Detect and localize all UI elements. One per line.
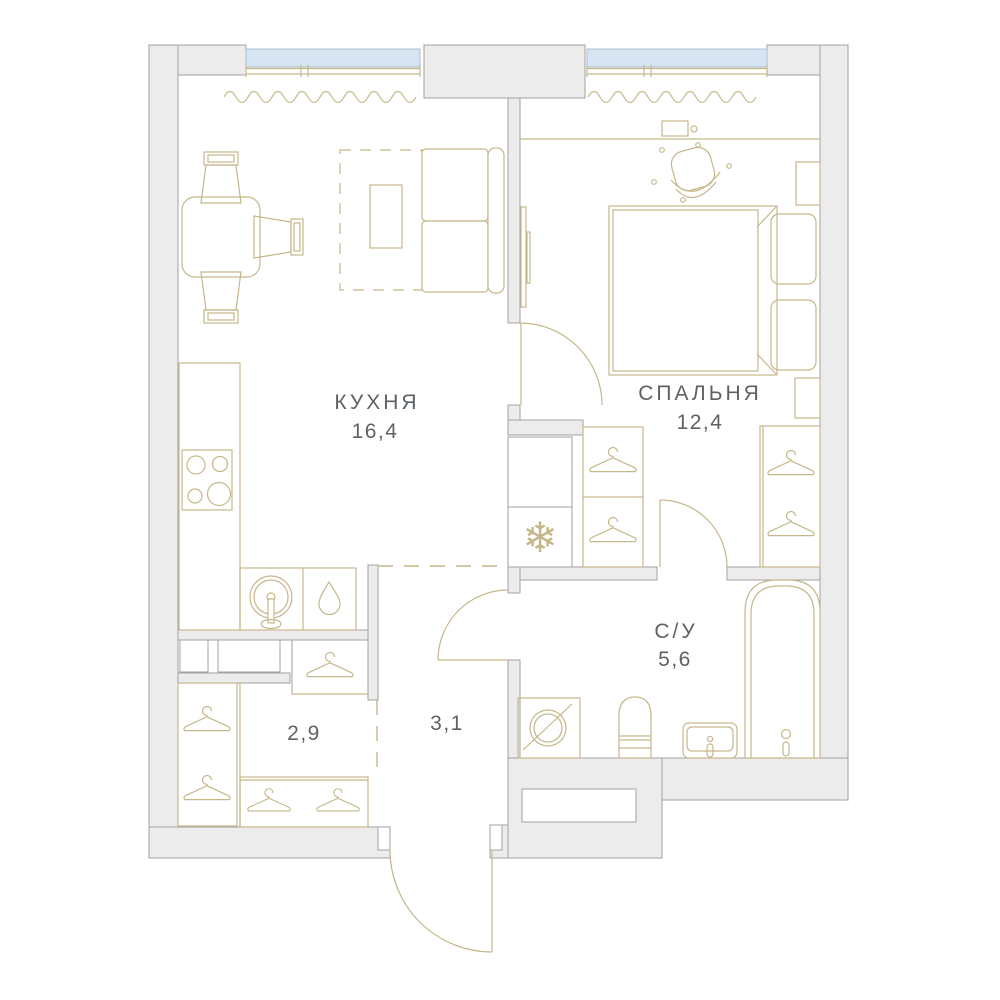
stove (182, 450, 232, 510)
dining-table-set (182, 152, 303, 323)
pillow (771, 300, 816, 370)
room-area-wardrobe: 2,9 (287, 722, 321, 745)
wall-bottom-left (149, 827, 390, 858)
window-kitchen (224, 49, 420, 103)
wall-stub-fridge-bottom (508, 567, 520, 593)
chair-right (254, 216, 303, 258)
vent-shaft (522, 789, 636, 822)
sofa-zone (340, 148, 504, 293)
window-bedroom (587, 49, 767, 103)
floor-plan: ❄ (0, 0, 1000, 1000)
drop-icon (319, 582, 340, 615)
door-swing-arc (660, 500, 727, 567)
wardrobe-left (178, 683, 240, 826)
door-kitchen-bedroom (520, 323, 602, 405)
room-area-bathroom: 5,6 (658, 648, 692, 671)
hanger-icon (317, 789, 360, 811)
hanger-icon (768, 512, 814, 536)
sofa-back (488, 148, 504, 293)
wall-kitchen-bottom (178, 630, 368, 640)
room-label-kitchen: КУХНЯ (334, 391, 419, 414)
room-area-bedroom: 12,4 (677, 411, 724, 434)
sofa-cushion (422, 149, 488, 221)
toilet (619, 697, 651, 758)
washing-machine (518, 698, 580, 758)
blanket-folds (757, 207, 776, 374)
room-area-kitchen: 16,4 (352, 420, 399, 443)
kitchen-sink-counter (240, 568, 356, 630)
pillow (771, 214, 816, 284)
wall-right (820, 45, 848, 800)
coffee-table (370, 185, 402, 248)
mouse-icon (691, 126, 697, 132)
bed-blanket (613, 210, 758, 371)
floor-plan-page: ❄ (0, 0, 1000, 1000)
chair-bottom (201, 272, 241, 323)
door-swing-arc (390, 850, 492, 952)
fridge-cabinet: ❄ (508, 437, 572, 567)
hanger-icon (248, 789, 291, 811)
bed-frame (609, 206, 777, 375)
wardrobe-bedroom-right (760, 426, 820, 567)
kitchen-furniture (179, 148, 504, 630)
hanger-icon (184, 776, 230, 800)
bed (609, 206, 816, 375)
entrance-door (390, 850, 492, 952)
window-glass (587, 49, 767, 67)
hanger-icon (184, 707, 230, 731)
dining-table (182, 197, 260, 277)
wall-left (149, 45, 178, 858)
wardrobe-bottom (240, 777, 368, 827)
tv (521, 207, 530, 307)
curtain-icon (224, 92, 416, 103)
wall-bath-top-right (727, 567, 820, 580)
chair-top (201, 152, 241, 203)
hanger-icon (590, 448, 636, 472)
window-glass (246, 49, 420, 67)
door-swing-arc (520, 323, 602, 405)
wall-bath-top-left (520, 567, 657, 580)
hall-closets (178, 566, 508, 827)
wall-kitchen-bedroom (508, 98, 520, 323)
bathroom-sink (683, 723, 737, 758)
door-swing-arc (438, 590, 508, 660)
curtain-icon (588, 92, 756, 103)
door-hall-bathroom (438, 590, 508, 660)
office-chair (652, 143, 732, 203)
cabinet (218, 640, 280, 672)
nightstand (795, 378, 820, 418)
wall-closet (368, 565, 378, 700)
entry-door-jamb-left (378, 827, 390, 850)
room-area-hallway: 3,1 (430, 712, 464, 735)
bathtub (745, 580, 820, 758)
entry-door-jamb-right (490, 825, 502, 850)
fridge-icon: ❄ (522, 513, 557, 562)
wall-closet-band (178, 673, 290, 683)
nightstand (796, 162, 820, 205)
hanger-icon (590, 518, 636, 542)
room-label-bedroom: СПАЛЬНЯ (638, 382, 762, 405)
closet-with-hanger (292, 640, 368, 694)
laptop-icon (662, 121, 688, 136)
cabinet (180, 640, 208, 672)
wall-top-pier (424, 45, 585, 98)
door-passage-bathroom (660, 500, 727, 567)
hanger-icon (768, 451, 814, 475)
room-label-bathroom: С/У (654, 620, 697, 643)
wall-fridge-top (508, 420, 583, 435)
wardrobe-bedroom-left (583, 427, 643, 567)
sofa-cushion (422, 221, 488, 292)
wall-bath-bottom-right (662, 758, 848, 800)
rug-outline (340, 150, 422, 290)
